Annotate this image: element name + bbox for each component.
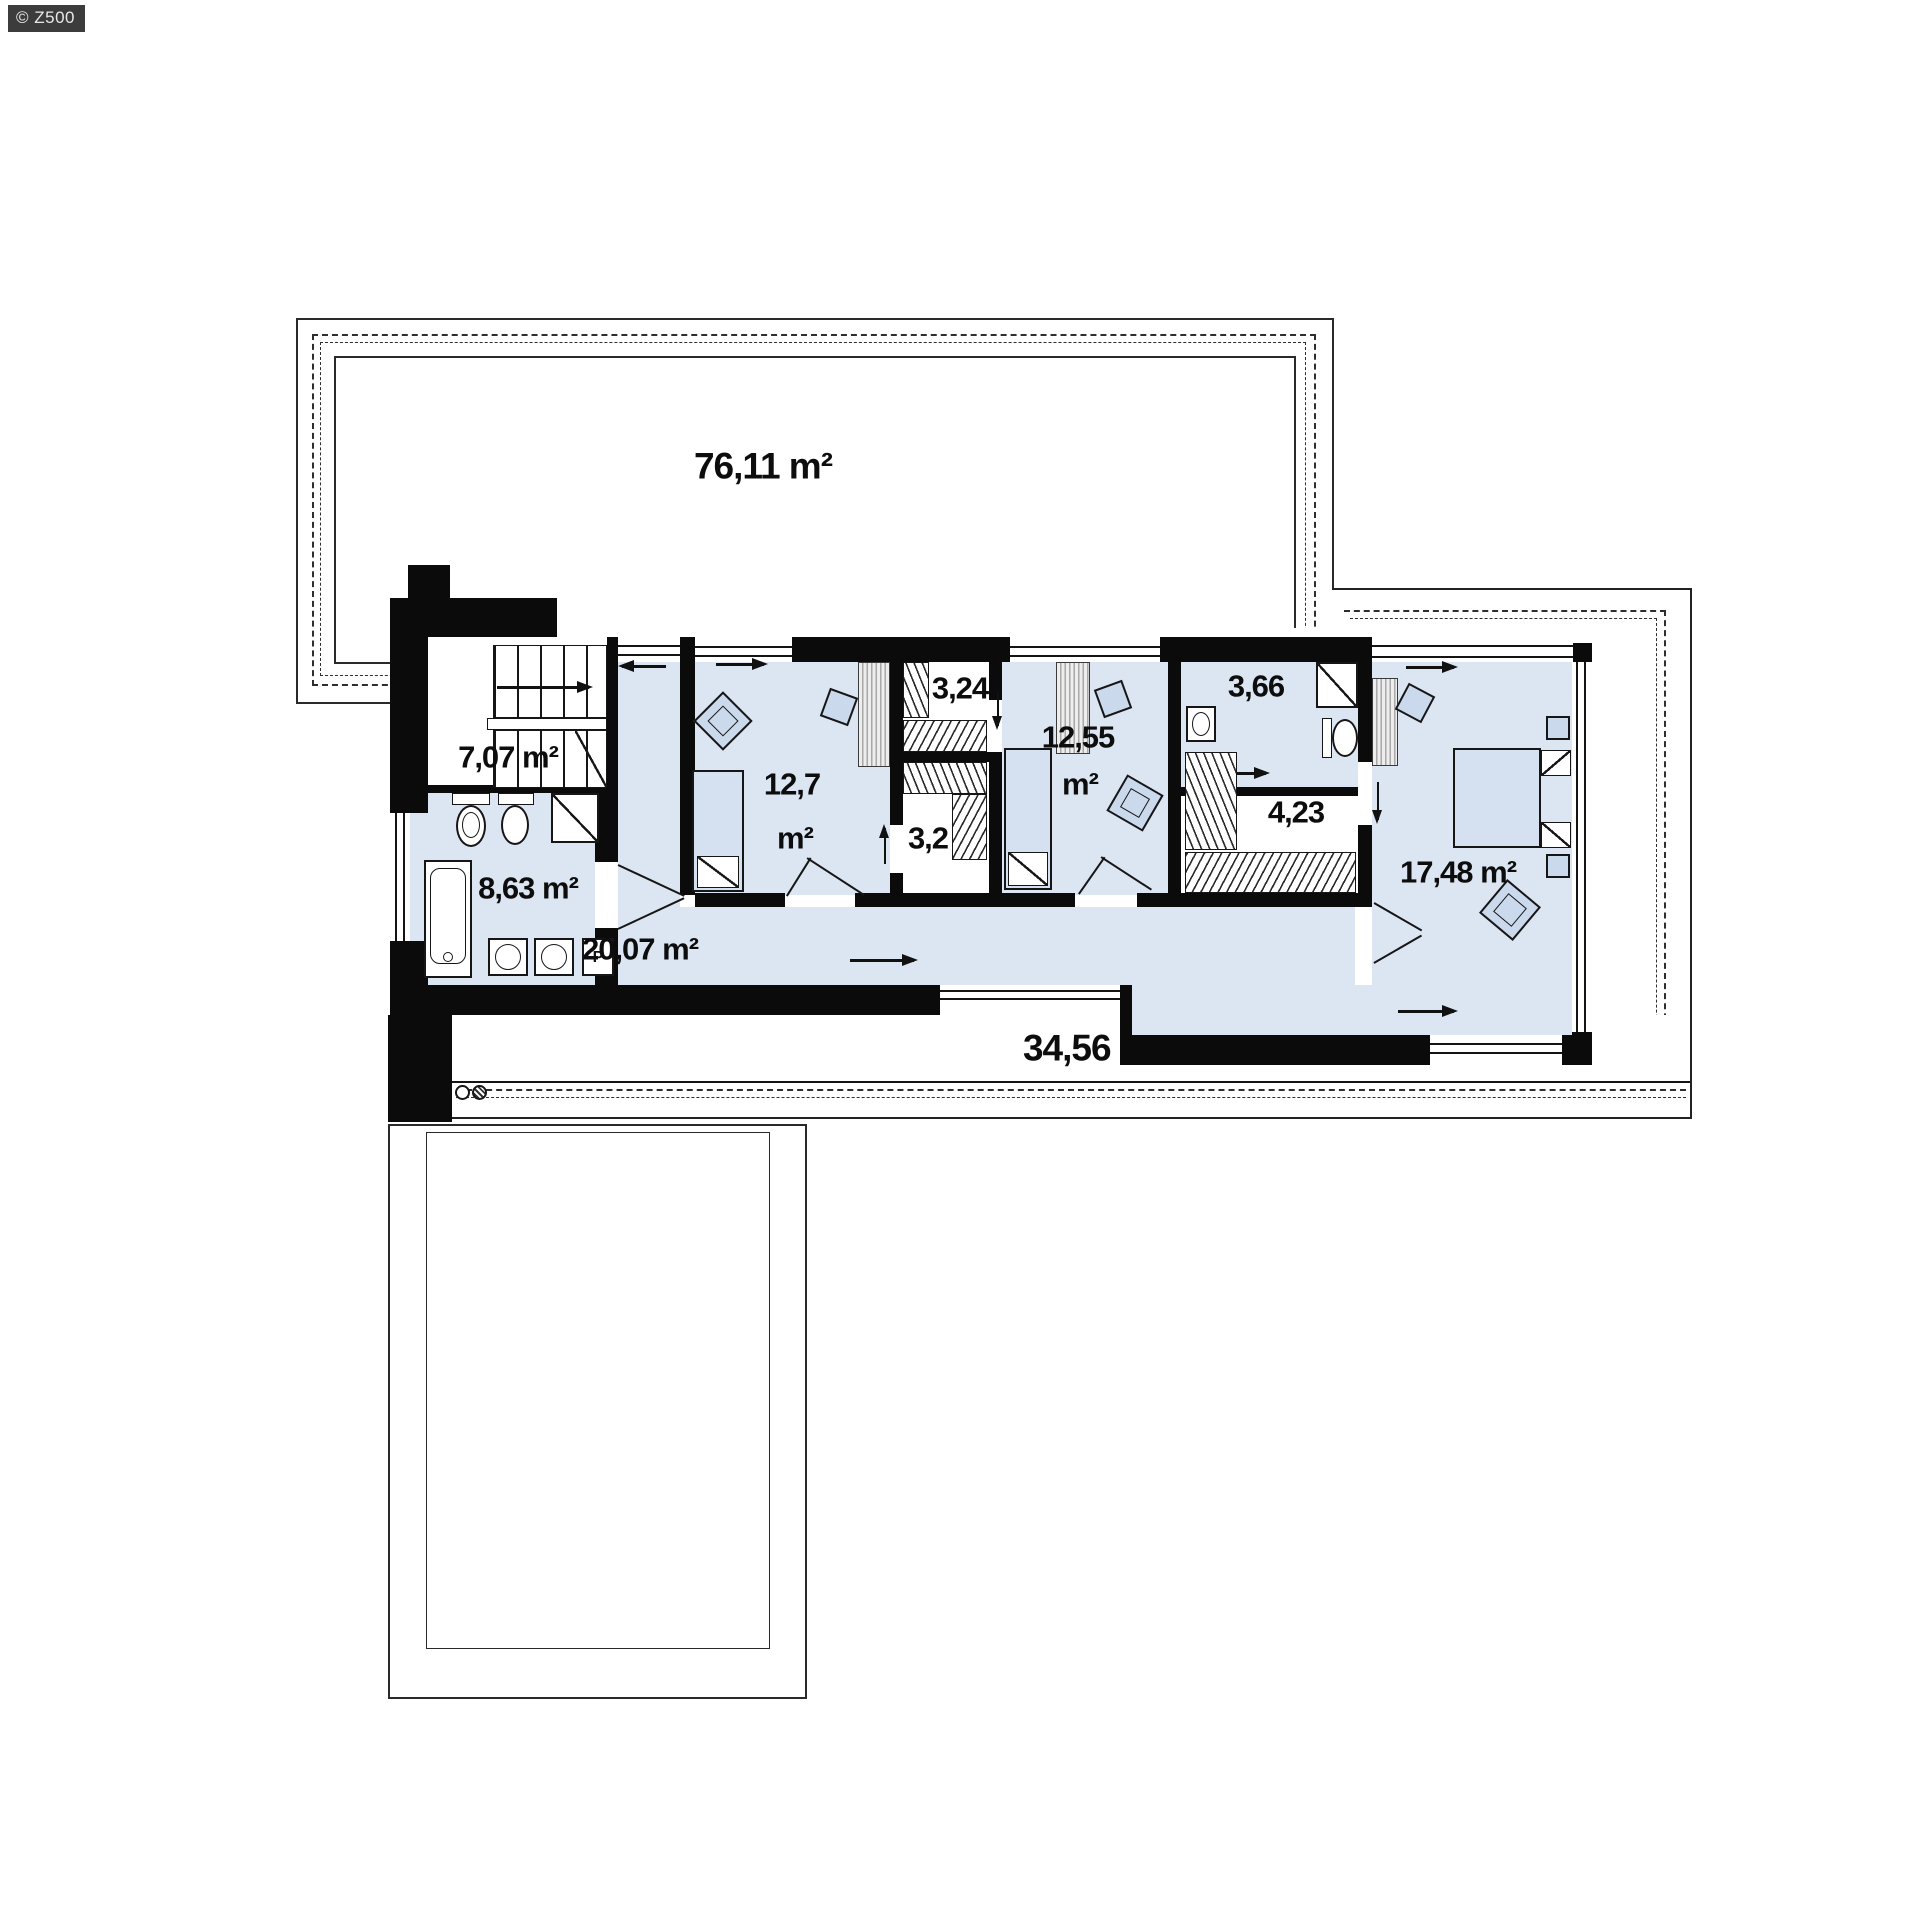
wall-b1-wardrobe-a: [890, 662, 903, 825]
closet-icon: [1185, 852, 1356, 893]
label-bedroom-mid-value: 12,55: [1042, 722, 1115, 753]
label-wardrobe-a: 3,24: [932, 673, 988, 704]
arrow-left-icon: [622, 665, 666, 668]
closet-icon: [903, 762, 987, 794]
drain-icon: [455, 1085, 470, 1100]
bed-icon: [1453, 748, 1541, 848]
watermark-badge: © Z500: [8, 5, 85, 32]
toilet-tank-icon: [452, 793, 490, 805]
label-bedroom-left-unit: m²: [777, 823, 813, 854]
window-left: [390, 813, 410, 941]
label-wardrobe-b: 3,2: [908, 823, 948, 854]
arrow-down-icon: [1377, 782, 1379, 820]
wall-bathc-master-b: [1358, 825, 1372, 907]
label-wardrobe-c: 4,23: [1268, 797, 1324, 828]
label-bedroom-mid-unit: m²: [1062, 769, 1098, 800]
wall-wardrobe-b2-b: [989, 752, 1002, 895]
nightstand-icon: [1546, 854, 1570, 878]
wall-wardrobe-divider: [903, 752, 989, 762]
label-corridor: 20,07 m²: [582, 934, 698, 965]
desk-icon: [1372, 678, 1398, 766]
wall-step: [1120, 985, 1132, 1065]
wall-bottom-bedroom: [1132, 1035, 1430, 1065]
desk-icon: [858, 662, 890, 767]
closet-icon: [1185, 752, 1237, 850]
wall-bottom-left: [428, 985, 940, 1015]
drain-hatched-icon: [472, 1085, 487, 1100]
wall-left-upper: [390, 637, 428, 813]
label-bedroom-left-value: 12,7: [764, 769, 820, 800]
bidet-tank-icon: [498, 793, 534, 805]
wall-bathc-master-a: [1358, 662, 1372, 762]
room-corridor-main: [618, 907, 1355, 985]
label-bathroom-right: 3,66: [1228, 671, 1284, 702]
window-bottom-bedroom: [1430, 1038, 1562, 1062]
bidet-icon: [501, 805, 529, 845]
wall-top-mid: [792, 637, 1010, 662]
window-right: [1576, 662, 1578, 1032]
wall-stair-right: [607, 637, 618, 793]
arrow-up-icon: [884, 828, 886, 864]
arrow-right-icon: [1398, 1010, 1454, 1013]
stair-direction-arrow-icon: [497, 686, 589, 689]
label-staircase: 7,07 m²: [458, 742, 558, 773]
toilet-icon: [1332, 719, 1358, 757]
window-top-3: [1010, 642, 1160, 662]
wall-corridor-top: [1137, 893, 1358, 907]
arrow-down-icon: [997, 692, 999, 726]
wall-stair-stub: [408, 565, 450, 598]
wall-b2-bath: [1168, 662, 1181, 895]
closet-icon: [903, 720, 987, 752]
wall-b1-wardrobe-b: [890, 873, 903, 895]
wall-stair-top: [390, 598, 557, 637]
closet-icon: [903, 662, 929, 718]
wall-corner-block: [388, 1015, 452, 1122]
wall-left-lower: [390, 941, 428, 1015]
wall-top-right: [1160, 637, 1372, 662]
window-top-2: [695, 642, 792, 662]
label-bathroom-left: 8,63 m²: [478, 873, 578, 904]
label-roof-terrace-top: 76,11 m²: [694, 448, 832, 485]
closet-icon: [952, 794, 987, 860]
toilet-tank-icon: [1322, 718, 1332, 758]
arrow-right-icon: [1406, 666, 1454, 669]
wall-wardrobe-b2-a: [989, 662, 1002, 700]
room-corridor-ext: [1132, 985, 1372, 1035]
room-bedroom-master: [1372, 662, 1572, 1035]
nightstand-icon: [1546, 716, 1570, 740]
floor-plan-canvas: © Z500 76,11 m² 34,56 m²: [0, 0, 1920, 1920]
arrow-right-icon: [716, 663, 764, 666]
arrow-right-icon: [850, 959, 914, 962]
label-bedroom-master: 17,48 m²: [1400, 857, 1516, 888]
